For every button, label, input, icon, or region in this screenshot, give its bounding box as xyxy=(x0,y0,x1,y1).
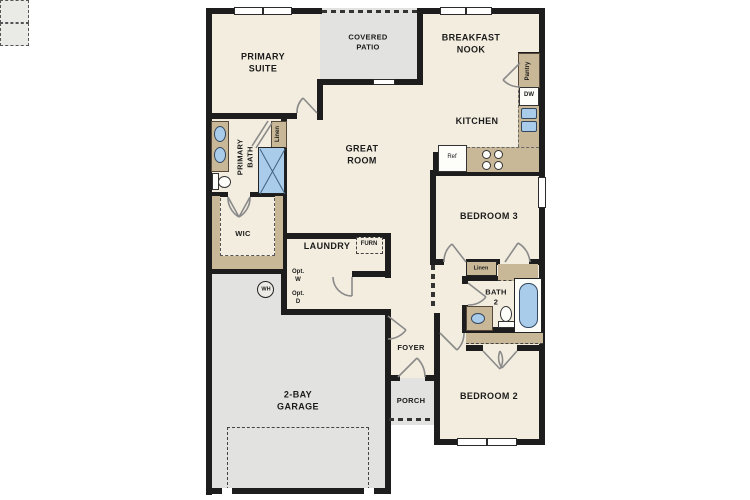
kitchen-sink-basin-2 xyxy=(521,121,537,132)
label-line: COVERED xyxy=(348,32,387,42)
label-line: NOOK xyxy=(442,44,501,56)
wall-hall-east xyxy=(430,170,436,265)
primary-vanity-sink-2 xyxy=(214,147,226,163)
bedroom3-window xyxy=(538,177,546,208)
cooktop-burner-3 xyxy=(482,161,491,170)
label-line: GARAGE xyxy=(277,401,319,413)
bath2-toilet-tank xyxy=(498,321,515,328)
wall-suite-east-post xyxy=(317,79,323,120)
label-line: BREAKFAST xyxy=(442,32,501,44)
wall-patio-south-west xyxy=(317,79,373,85)
wall-bed2closet-south-b xyxy=(517,345,543,351)
garage-door-dashed xyxy=(227,427,369,490)
cooktop-burner-1 xyxy=(482,150,491,159)
room-label-foyer: FOYER xyxy=(397,343,424,353)
room-label-great-room: GREAT ROOM xyxy=(346,143,379,166)
wall-west-bedroom2 xyxy=(434,313,440,445)
wall-patio-south-east xyxy=(395,79,417,85)
label-line: ROOM xyxy=(346,155,379,167)
label-line: BATH xyxy=(245,139,255,175)
wall-laundry-vestibule xyxy=(352,271,391,277)
room-label-kitchen: KITCHEN xyxy=(456,116,499,128)
primary-suite-window-1 xyxy=(234,7,263,15)
label-pantry: Pantry xyxy=(525,62,533,81)
label-line: PRIMARY xyxy=(241,51,285,63)
label-line: Opt. xyxy=(292,291,304,299)
wall-bath2-west-stub xyxy=(462,276,468,284)
optional-washer-box xyxy=(0,0,29,23)
wall-bath2-north xyxy=(466,276,498,281)
kitchen-counter-south xyxy=(467,147,539,172)
room-label-covered-patio: COVERED PATIO xyxy=(348,32,387,52)
bedroom2-window-1 xyxy=(457,438,487,446)
room-label-bath2: BATH 2 xyxy=(485,287,506,307)
label-line: 2 xyxy=(485,297,506,307)
label-optional-dryer: Opt. D xyxy=(292,291,304,307)
wic-shelf-bottom xyxy=(212,256,283,269)
garage-door-jamb-left xyxy=(222,488,232,494)
room-label-primary-suite: PRIMARY SUITE xyxy=(241,51,285,74)
optional-dryer-box xyxy=(0,23,29,46)
primary-toilet-bowl xyxy=(218,176,231,188)
bedroom2-closet-shelf xyxy=(466,333,543,344)
label-optional-washer: Opt. W xyxy=(292,269,304,285)
room-label-wic: WIC xyxy=(235,229,250,239)
wall-bed2closet-south-a xyxy=(466,345,483,351)
primary-shower xyxy=(258,147,285,194)
wall-patio-east xyxy=(417,8,423,85)
label-linen-hall: Linen xyxy=(474,265,489,272)
room-label-primary-bath: PRIMARY BATH xyxy=(235,139,255,175)
label-line: BATH xyxy=(485,287,506,297)
cooktop-burner-4 xyxy=(494,161,503,170)
breakfast-nook-window-2 xyxy=(466,7,492,15)
label-dishwasher: DW xyxy=(524,92,534,100)
wall-foyer-south-a xyxy=(388,375,400,381)
wic-shelf-dashed-edge xyxy=(220,198,275,256)
label-line: W xyxy=(292,277,304,285)
kitchen-sink-basin-1 xyxy=(521,108,537,119)
primary-suite-window-2 xyxy=(263,7,292,15)
bedroom2-window-2 xyxy=(487,438,517,446)
room-label-laundry: LAUNDRY xyxy=(304,241,350,253)
shower-glass-marks xyxy=(259,148,286,195)
room-label-porch: PORCH xyxy=(397,396,426,406)
label-line: PATIO xyxy=(348,42,387,52)
label-furnace: FURN xyxy=(361,241,378,249)
label-water-heater: WH xyxy=(261,286,270,293)
label-line: Opt. xyxy=(292,269,304,277)
label-line: 2-BAY xyxy=(277,389,319,401)
label-line: D xyxy=(292,299,304,307)
cooktop-burner-2 xyxy=(494,150,503,159)
wall-foyer-south-b xyxy=(425,375,434,381)
bath2-toilet-bowl xyxy=(500,306,512,322)
room-label-bedroom3: BEDROOM 3 xyxy=(460,211,518,223)
label-line: SUITE xyxy=(241,63,285,75)
label-linen-primary: Linen xyxy=(275,126,283,142)
bath2-sink xyxy=(471,313,485,324)
floor-plan: PRIMARY SUITE COVERED PATIO BREAKFAST NO… xyxy=(0,0,750,500)
wall-bedroom3-south-a xyxy=(436,259,444,265)
primary-vanity-sink-1 xyxy=(214,126,226,142)
wall-laundry-south xyxy=(284,309,391,315)
label-refrigerator: Ref xyxy=(447,154,456,162)
room-label-bedroom2: BEDROOM 2 xyxy=(460,391,518,403)
bath2-tub xyxy=(519,283,538,328)
label-line: GREAT xyxy=(346,143,379,155)
label-line: PRIMARY xyxy=(235,139,245,175)
patio-open-edge-dashed xyxy=(322,10,417,13)
wall-east-garage xyxy=(385,313,391,494)
great-room-patio-door xyxy=(373,79,395,85)
hall-opening-dashed xyxy=(431,265,435,310)
porch-edge-dashed xyxy=(389,418,434,421)
garage-door-jamb-right xyxy=(364,488,374,494)
room-label-garage: 2-BAY GARAGE xyxy=(277,389,319,412)
room-label-breakfast-nook: BREAKFAST NOOK xyxy=(442,32,501,55)
breakfast-nook-window-1 xyxy=(440,7,466,15)
